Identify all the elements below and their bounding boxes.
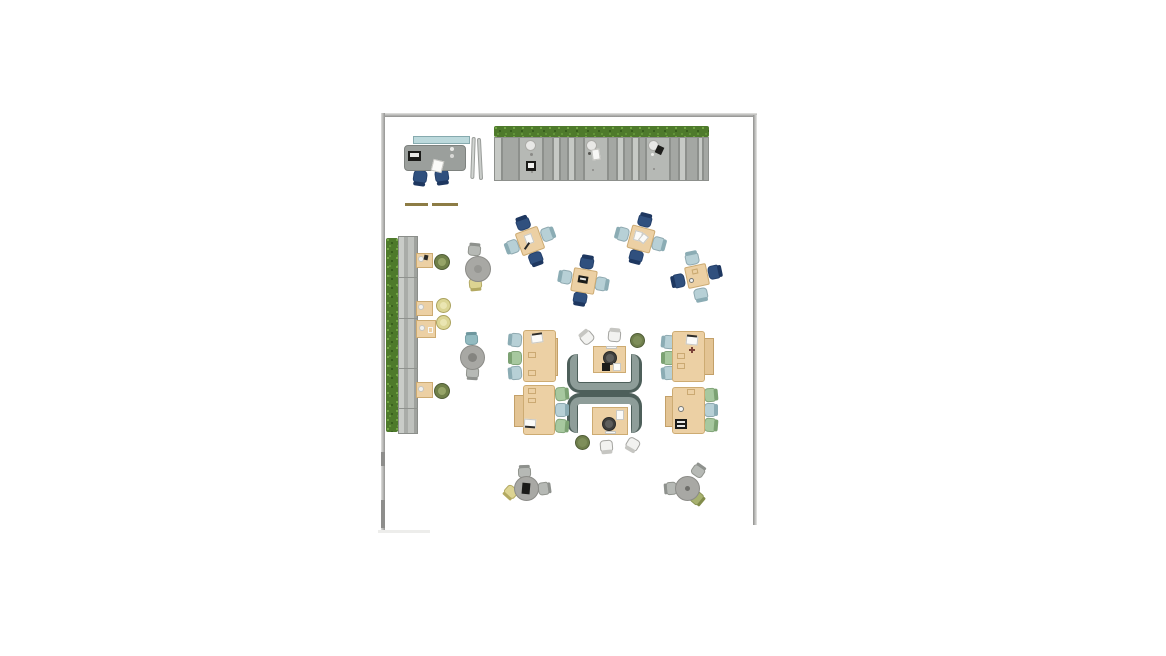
booth-panel	[703, 137, 709, 181]
counter-divider	[398, 318, 418, 319]
task-chair	[507, 332, 522, 347]
wall-right	[753, 115, 757, 525]
booth-dot	[530, 153, 533, 156]
booth-papers	[591, 148, 600, 160]
wall-left-jamb	[381, 500, 385, 528]
side-chair	[467, 242, 481, 256]
booth-panel	[568, 137, 575, 181]
booth-panel	[575, 137, 584, 181]
tray	[428, 327, 433, 333]
planter-hedge-top	[494, 126, 709, 137]
chair-back	[604, 278, 610, 291]
privacy-screen	[477, 138, 483, 180]
chair-back	[573, 301, 586, 307]
booth-panel	[543, 137, 553, 181]
side-chair	[465, 332, 478, 345]
laptop-screen	[410, 153, 419, 157]
desk-grommet	[677, 363, 685, 369]
laptop-screen	[677, 421, 685, 423]
privacy-screen	[470, 137, 475, 179]
chair-seat	[465, 334, 478, 345]
desk-grommet	[677, 353, 685, 359]
chair-back	[565, 387, 570, 400]
stool-top	[440, 319, 447, 326]
desk-grommet	[528, 388, 536, 394]
desk-accessory	[450, 147, 454, 151]
round-table-base	[468, 353, 477, 362]
round-table-base	[685, 486, 690, 491]
booth-dot	[588, 152, 591, 155]
chair-back	[661, 352, 665, 365]
plate	[418, 304, 424, 310]
booth-panel	[632, 137, 639, 181]
pouf-top	[578, 438, 587, 447]
chair-back	[714, 404, 718, 417]
counter-divider	[398, 277, 418, 278]
booth-panel	[502, 137, 519, 181]
wall-left-jamb	[381, 452, 385, 466]
desk-grommet	[528, 398, 536, 403]
chair-back	[565, 420, 570, 433]
task-chair	[554, 386, 569, 401]
floor-mat	[432, 203, 458, 206]
booth-panel	[670, 137, 679, 181]
chair-back	[470, 287, 482, 292]
booth-handle	[653, 168, 655, 170]
chair-back	[601, 450, 613, 455]
desk-screen-panel	[413, 136, 470, 144]
booth-panel	[624, 137, 632, 181]
chair-seat	[510, 351, 522, 365]
chair-back	[565, 404, 569, 417]
booth-panel	[686, 137, 698, 181]
booth-handle	[531, 171, 533, 173]
four-top-table	[684, 263, 710, 289]
guest-chair	[623, 436, 641, 455]
task-chair	[703, 417, 718, 432]
task-chair	[703, 387, 718, 402]
laptop-screen	[677, 425, 685, 427]
booth-handle	[592, 169, 594, 171]
floor-plan	[0, 0, 1166, 656]
stool-top	[438, 258, 446, 266]
cafe-counter	[398, 236, 418, 434]
booth-panel	[617, 137, 624, 181]
paper	[616, 410, 624, 420]
desk-grommet	[528, 370, 536, 376]
exec-guest-chair	[412, 169, 428, 187]
task-stool-top	[605, 420, 613, 428]
booth-panel	[639, 137, 646, 181]
planter-hedge-left	[386, 238, 398, 432]
guest-chair	[599, 439, 613, 454]
stool-top	[438, 387, 446, 395]
booth-panel	[553, 137, 560, 181]
chair-back	[714, 388, 719, 401]
cup	[689, 278, 694, 283]
cup	[678, 406, 684, 412]
laptop-black	[602, 363, 610, 371]
task-chair	[704, 403, 718, 417]
guest-chair	[607, 327, 621, 342]
task-chair	[508, 351, 522, 365]
cafe-chair	[670, 273, 687, 290]
booth-table	[525, 140, 536, 151]
desk-grommet	[528, 352, 536, 358]
cafe-chair	[707, 264, 724, 281]
floor-mat	[405, 203, 428, 206]
laptop	[605, 431, 616, 434]
pouf-top	[633, 336, 642, 345]
desk-grommet	[687, 389, 695, 395]
round-table-base	[474, 265, 482, 273]
desk-accent	[691, 347, 693, 353]
page	[0, 0, 1166, 656]
booth-panel	[608, 137, 617, 181]
booth-panel	[679, 137, 686, 181]
chair-back	[466, 376, 478, 380]
booth-panel	[560, 137, 568, 181]
counter-divider	[398, 368, 418, 369]
plate	[418, 386, 424, 392]
paper	[613, 363, 621, 371]
booth-panel	[494, 137, 502, 181]
plate	[419, 325, 425, 331]
wall-top	[381, 113, 757, 117]
laptop	[606, 346, 617, 349]
chair-back	[436, 180, 449, 186]
floor-shadow	[378, 530, 430, 533]
guest-chair	[577, 327, 596, 346]
wall-left	[381, 113, 385, 531]
task-chair	[554, 418, 569, 433]
task-chair	[555, 403, 569, 417]
booth-dot	[651, 153, 654, 156]
stool-top	[440, 302, 447, 309]
desk-accessory	[450, 154, 454, 158]
laptop-black	[522, 483, 531, 495]
cafe-chair	[693, 287, 710, 304]
task-stool-top	[606, 354, 614, 362]
meeting-chair	[537, 481, 552, 496]
task-chair	[507, 365, 522, 380]
chair-back	[714, 419, 719, 432]
chair-back	[413, 181, 426, 187]
chair-back	[508, 352, 512, 365]
booth-monitor-screen	[528, 163, 534, 168]
counter-divider	[398, 408, 418, 409]
